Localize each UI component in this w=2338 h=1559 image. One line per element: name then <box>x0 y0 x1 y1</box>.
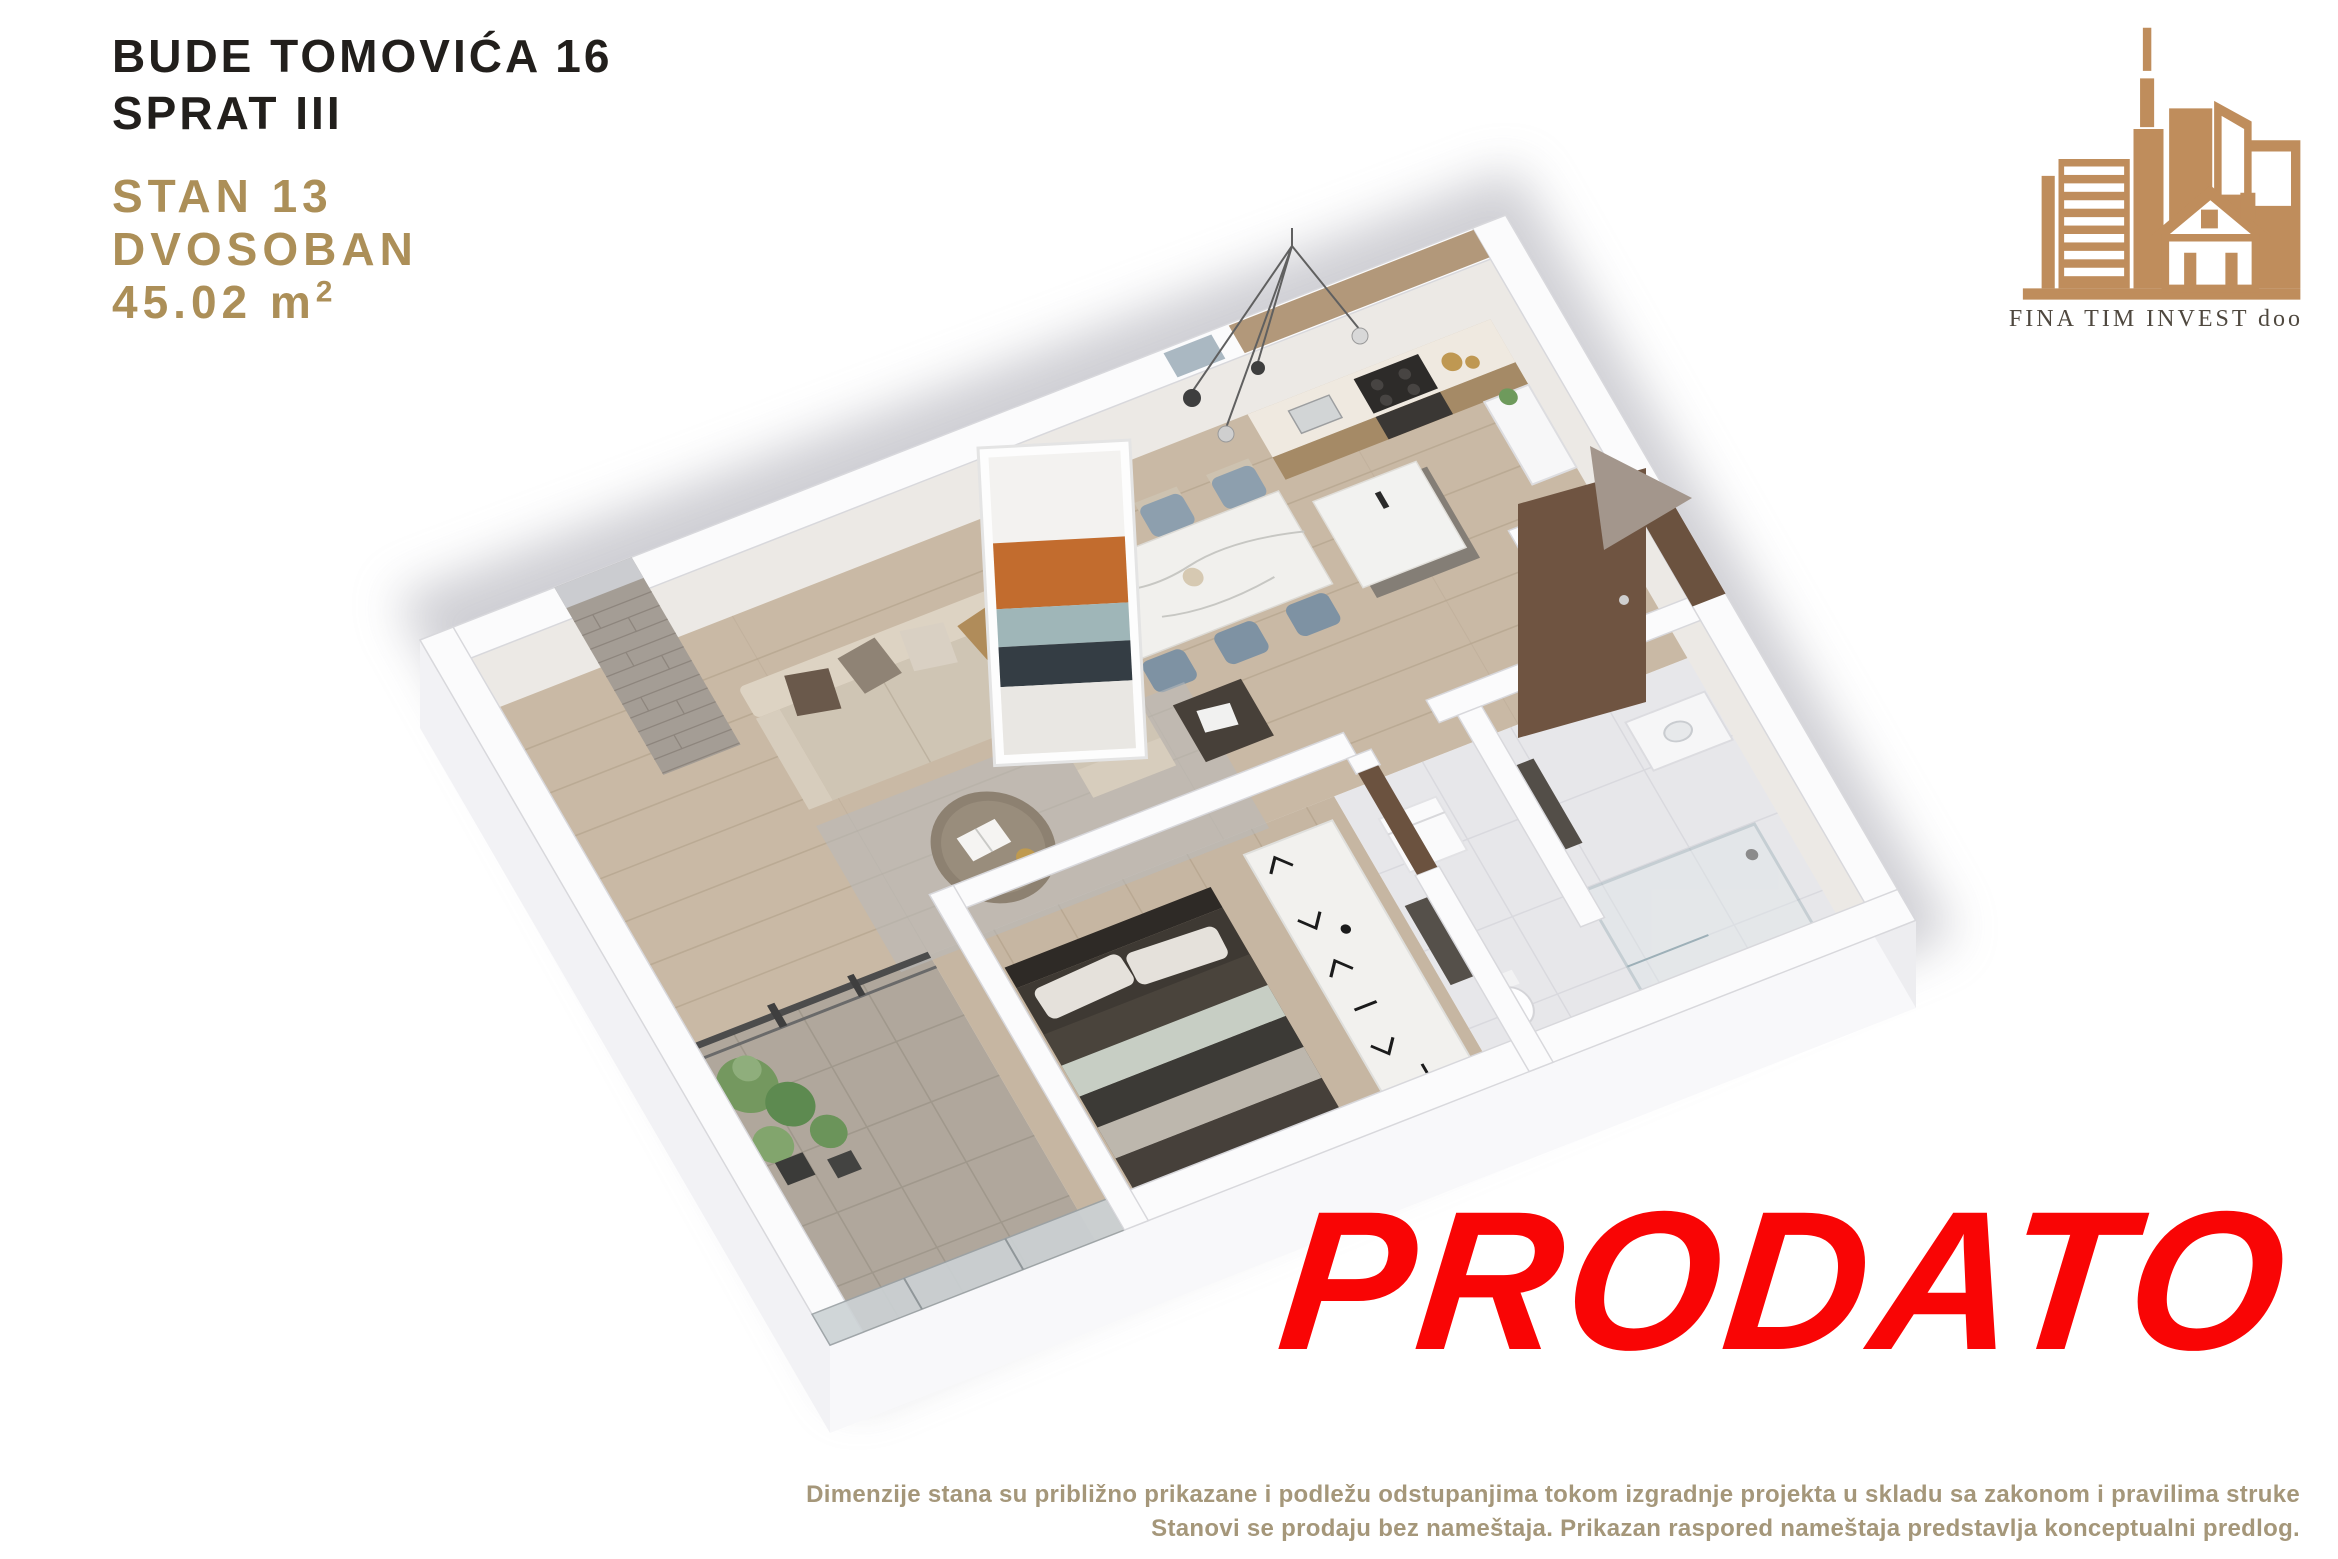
company-logo: FINA TIM INVEST doo <box>2006 14 2306 333</box>
disclaimer: Dimenzije stana su približno prikazane i… <box>700 1478 2300 1546</box>
area-superscript: 2 <box>316 276 333 309</box>
wall-artwork <box>978 440 1146 766</box>
floor-line: SPRAT III <box>112 85 612 142</box>
unit-area: 45.02 m2 <box>112 276 418 329</box>
disclaimer-line: Stanovi se prodaju bez nameštaja. Prikaz… <box>700 1512 2300 1546</box>
company-name: FINA TIM INVEST doo <box>2006 306 2306 333</box>
disclaimer-line: Dimenzije stana su približno prikazane i… <box>700 1478 2300 1512</box>
unit-type: DVOSOBAN <box>112 223 418 276</box>
address-line: BUDE TOMOVIĆA 16 <box>112 28 612 85</box>
listing-page: BUDE TOMOVIĆA 16 SPRAT III STAN 13 DVOSO… <box>0 0 2338 1559</box>
address-block: BUDE TOMOVIĆA 16 SPRAT III <box>112 28 612 142</box>
unit-info-block: STAN 13 DVOSOBAN 45.02 m2 <box>112 170 418 329</box>
unit-number: STAN 13 <box>112 170 418 223</box>
logo-buildings-icon <box>2006 14 2306 304</box>
logo-house <box>2149 185 2273 288</box>
sold-stamp: PRODATO <box>1272 1182 2300 1380</box>
